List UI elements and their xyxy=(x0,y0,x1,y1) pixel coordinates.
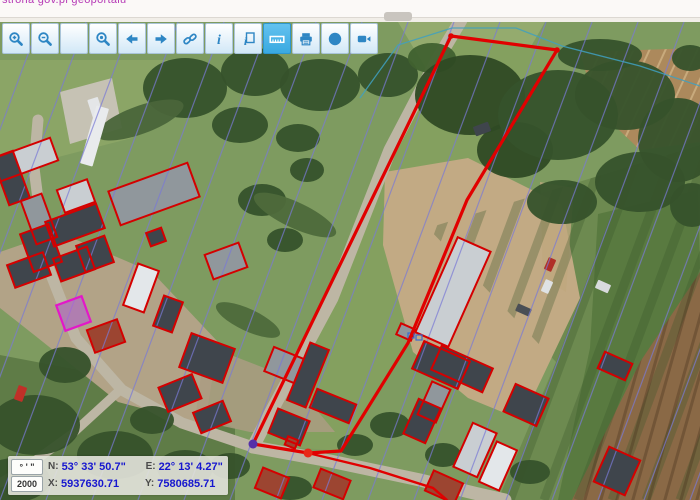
x-value: 5937630.71 xyxy=(61,478,141,490)
tree-cluster xyxy=(527,180,597,224)
globe-icon xyxy=(327,31,343,47)
page-gap xyxy=(0,18,700,22)
pan-button[interactable] xyxy=(60,23,88,54)
info-button[interactable]: i xyxy=(205,23,233,54)
print-button[interactable] xyxy=(292,23,320,54)
zoom-out-icon xyxy=(37,31,53,47)
map-canvas[interactable] xyxy=(0,22,700,500)
coordinates-panel: ° ' " N: 53° 33' 50.7" E: 22° 13' 4.27" … xyxy=(8,456,228,495)
link-button[interactable] xyxy=(176,23,204,54)
measure-icon xyxy=(269,31,285,47)
parcel-corner-dot xyxy=(554,47,560,53)
tree-cluster xyxy=(267,228,303,252)
browser-top-strip: strona gov.pl geoportalu xyxy=(0,0,700,18)
back-arrow-icon xyxy=(124,31,140,47)
info-icon: i xyxy=(211,31,227,47)
back-button[interactable] xyxy=(118,23,146,54)
x-label: X: xyxy=(48,478,58,489)
east-label: E: xyxy=(146,461,156,472)
zoom-in-icon xyxy=(8,31,24,47)
east-value: 22° 13' 4.27" xyxy=(159,461,223,473)
scale-input[interactable]: 2000 xyxy=(11,476,43,492)
tree-cluster xyxy=(276,124,320,152)
globe-button[interactable] xyxy=(321,23,349,54)
camera-button[interactable] xyxy=(350,23,378,54)
forward-arrow-icon xyxy=(153,31,169,47)
svg-text:i: i xyxy=(244,34,248,47)
zoom-in-button[interactable] xyxy=(2,23,30,54)
zoom-out-button[interactable] xyxy=(31,23,59,54)
tree-cluster xyxy=(39,347,91,383)
north-label: N: xyxy=(48,461,59,472)
zoom-extent-icon xyxy=(95,31,111,47)
pan-icon xyxy=(66,31,82,47)
north-value: 53° 33' 50.7" xyxy=(62,461,142,473)
tree-cluster xyxy=(212,107,268,143)
scrollbar-thumb[interactable] xyxy=(384,12,412,21)
y-label: Y: xyxy=(145,478,154,489)
svg-text:i: i xyxy=(217,33,221,47)
camera-icon xyxy=(356,31,372,47)
page-link[interactable]: strona gov.pl geoportalu xyxy=(2,0,126,6)
print-icon xyxy=(298,31,314,47)
vertex-marker-purple[interactable] xyxy=(249,440,258,449)
y-value: 7580685.71 xyxy=(157,478,215,490)
link-icon xyxy=(182,31,198,47)
tree-cluster xyxy=(221,48,289,96)
forward-button[interactable] xyxy=(147,23,175,54)
measure-button[interactable] xyxy=(263,23,291,54)
parcel-corner-dot xyxy=(448,33,454,39)
identify-button[interactable]: i xyxy=(234,23,262,54)
map-toolbar: ii xyxy=(2,23,378,54)
zoom-extent-button[interactable] xyxy=(89,23,117,54)
identify-icon: i xyxy=(240,31,256,47)
dms-format-button[interactable]: ° ' " xyxy=(11,459,43,475)
vertex-marker-red[interactable] xyxy=(304,449,313,458)
